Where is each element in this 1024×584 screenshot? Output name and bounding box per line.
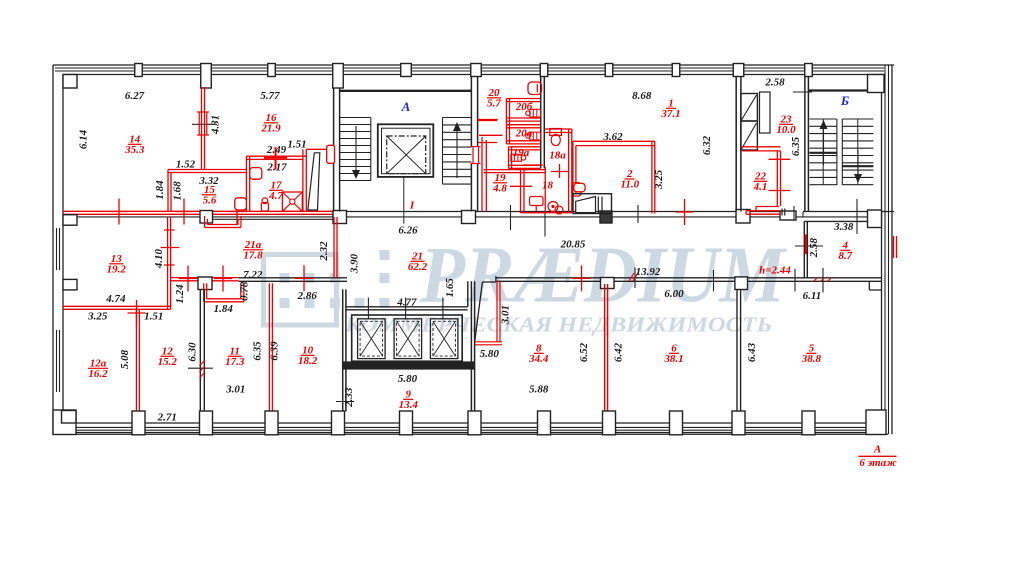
- svg-text:11.0: 11.0: [620, 179, 639, 191]
- svg-text:КОММЕРЧЕСКАЯ НЕДВИЖИМОСТЬ: КОММЕРЧЕСКАЯ НЕДВИЖИМОСТЬ: [344, 313, 772, 337]
- svg-text:6.26: 6.26: [398, 225, 418, 237]
- svg-text:Б: Б: [840, 93, 849, 108]
- svg-text:1.68: 1.68: [172, 181, 184, 201]
- svg-text:4.74: 4.74: [105, 293, 126, 305]
- svg-text:5.7: 5.7: [487, 97, 501, 109]
- svg-text:6.14: 6.14: [78, 129, 90, 149]
- svg-text:5.80: 5.80: [398, 373, 418, 385]
- svg-text:38.8: 38.8: [801, 353, 822, 365]
- svg-text:5.88: 5.88: [529, 384, 549, 396]
- svg-text:18а: 18а: [549, 150, 566, 162]
- svg-text:h=2.44: h=2.44: [759, 265, 791, 277]
- svg-text:6.35: 6.35: [252, 341, 264, 361]
- svg-text:6.52: 6.52: [578, 342, 590, 362]
- svg-text:3.25: 3.25: [653, 169, 665, 190]
- svg-text:20.85: 20.85: [560, 239, 586, 251]
- svg-text:6.32: 6.32: [701, 135, 713, 155]
- svg-text:А: А: [873, 444, 881, 456]
- svg-text:37.1: 37.1: [660, 108, 680, 120]
- svg-text:2.33: 2.33: [343, 387, 355, 408]
- svg-text:19а: 19а: [513, 147, 530, 159]
- svg-text:4.77: 4.77: [396, 297, 417, 309]
- svg-text:1.84: 1.84: [214, 303, 234, 315]
- svg-text:17.8: 17.8: [243, 249, 263, 261]
- svg-text:5.6: 5.6: [203, 194, 217, 206]
- svg-text:4.31: 4.31: [210, 115, 222, 135]
- svg-text:5.80: 5.80: [480, 348, 500, 360]
- svg-text:62.2: 62.2: [408, 261, 428, 273]
- svg-text:6.11: 6.11: [803, 290, 822, 302]
- svg-text:1.52: 1.52: [176, 159, 196, 171]
- svg-text:5.08: 5.08: [119, 349, 131, 369]
- svg-text:10.0: 10.0: [776, 124, 796, 136]
- svg-text:2.49: 2.49: [266, 144, 287, 156]
- svg-text:2.32: 2.32: [318, 241, 330, 262]
- svg-text:4.8: 4.8: [492, 182, 507, 194]
- svg-text:4.7: 4.7: [268, 190, 283, 202]
- svg-text:6.39: 6.39: [269, 341, 281, 361]
- svg-text:38.1: 38.1: [663, 353, 683, 365]
- svg-text:3.01: 3.01: [500, 305, 512, 325]
- svg-text:35.3: 35.3: [124, 144, 145, 156]
- svg-text:I: I: [409, 200, 415, 212]
- svg-text:18: 18: [542, 180, 554, 192]
- svg-text:7.22: 7.22: [243, 269, 263, 281]
- svg-text:3.25: 3.25: [87, 311, 108, 323]
- svg-text:1.24: 1.24: [174, 284, 186, 304]
- svg-text:15.2: 15.2: [158, 356, 178, 368]
- svg-text:3.90: 3.90: [349, 253, 361, 274]
- svg-text:6.43: 6.43: [746, 342, 758, 362]
- svg-text:21.9: 21.9: [260, 122, 281, 134]
- svg-text:2.17: 2.17: [266, 162, 287, 174]
- svg-text:19.2: 19.2: [107, 263, 127, 275]
- svg-text:1.65: 1.65: [444, 278, 456, 298]
- svg-text:6.27: 6.27: [125, 90, 145, 102]
- svg-text:А: А: [401, 99, 411, 114]
- svg-text:0.78: 0.78: [239, 281, 251, 301]
- svg-text:1.51: 1.51: [144, 311, 163, 323]
- svg-text:6.30: 6.30: [186, 342, 198, 362]
- svg-text:18.2: 18.2: [298, 355, 318, 367]
- svg-text:20а: 20а: [515, 128, 533, 140]
- svg-text:1.84: 1.84: [154, 180, 166, 200]
- svg-text:8.68: 8.68: [632, 90, 652, 102]
- svg-text:2.71: 2.71: [157, 411, 177, 423]
- svg-text:4.1: 4.1: [753, 181, 768, 193]
- svg-text:6.00: 6.00: [664, 288, 684, 300]
- svg-text:17.3: 17.3: [225, 356, 245, 368]
- svg-text:2.86: 2.86: [297, 290, 318, 302]
- svg-text:13.4: 13.4: [399, 399, 419, 411]
- svg-text:16.2: 16.2: [88, 368, 108, 380]
- svg-text:8.7: 8.7: [838, 250, 852, 262]
- svg-text:3.01: 3.01: [225, 384, 245, 396]
- svg-text:2.58: 2.58: [808, 237, 820, 258]
- svg-text:1.51: 1.51: [287, 139, 306, 151]
- svg-text:4.10: 4.10: [153, 248, 165, 269]
- svg-text:2.58: 2.58: [764, 77, 785, 89]
- svg-text:5.77: 5.77: [260, 90, 280, 102]
- svg-text:6.42: 6.42: [613, 342, 625, 362]
- svg-text:6.35: 6.35: [790, 136, 802, 156]
- svg-text:20б: 20б: [515, 101, 533, 113]
- svg-text:6 этаж: 6 этаж: [859, 457, 897, 469]
- svg-text:3.62: 3.62: [602, 131, 623, 143]
- svg-text:3.38: 3.38: [833, 221, 854, 233]
- svg-text:34.4: 34.4: [528, 353, 549, 365]
- svg-text:13.92: 13.92: [636, 266, 661, 278]
